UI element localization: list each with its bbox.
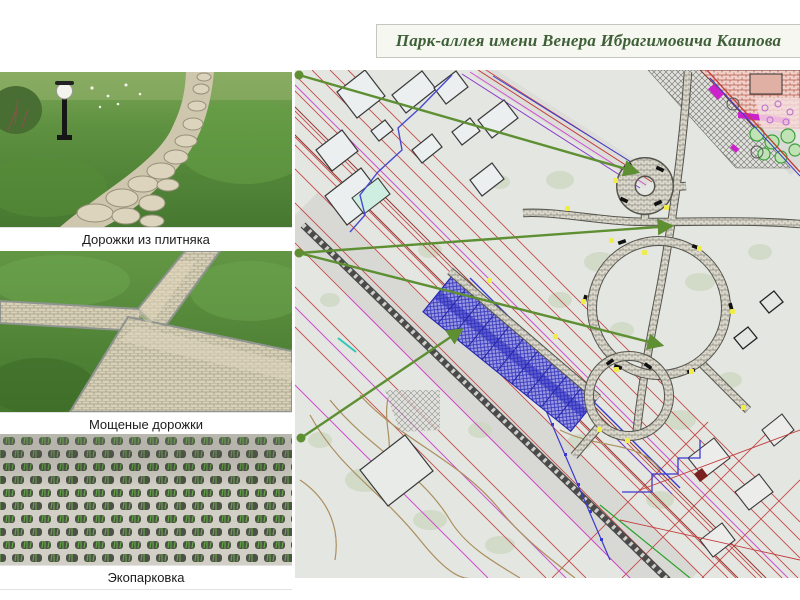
caption-eco: Экопарковка: [0, 565, 292, 590]
caption-flagstone-label: Дорожки из плитняка: [82, 232, 210, 247]
paved-photo-art: [0, 251, 292, 412]
page-title: Парк-аллея имени Венера Ибрагимовича Каи…: [396, 31, 781, 51]
photo-eco-parking: [0, 434, 292, 565]
site-plan-image: [295, 70, 800, 578]
caption-eco-label: Экопарковка: [107, 570, 184, 585]
photo-paved-paths: [0, 251, 292, 412]
site-plan-map: [295, 70, 800, 578]
eco-photo-art: [0, 434, 292, 565]
caption-paved-label: Мощеные дорожки: [89, 417, 203, 432]
caption-flagstone: Дорожки из плитняка: [0, 227, 292, 252]
title-banner: Парк-аллея имени Венера Ибрагимовича Каи…: [376, 24, 800, 58]
flagstone-photo-art: [0, 72, 292, 227]
photo-flagstone-path: [0, 72, 292, 227]
slide-root: Парк-аллея имени Венера Ибрагимовича Каи…: [0, 0, 800, 600]
